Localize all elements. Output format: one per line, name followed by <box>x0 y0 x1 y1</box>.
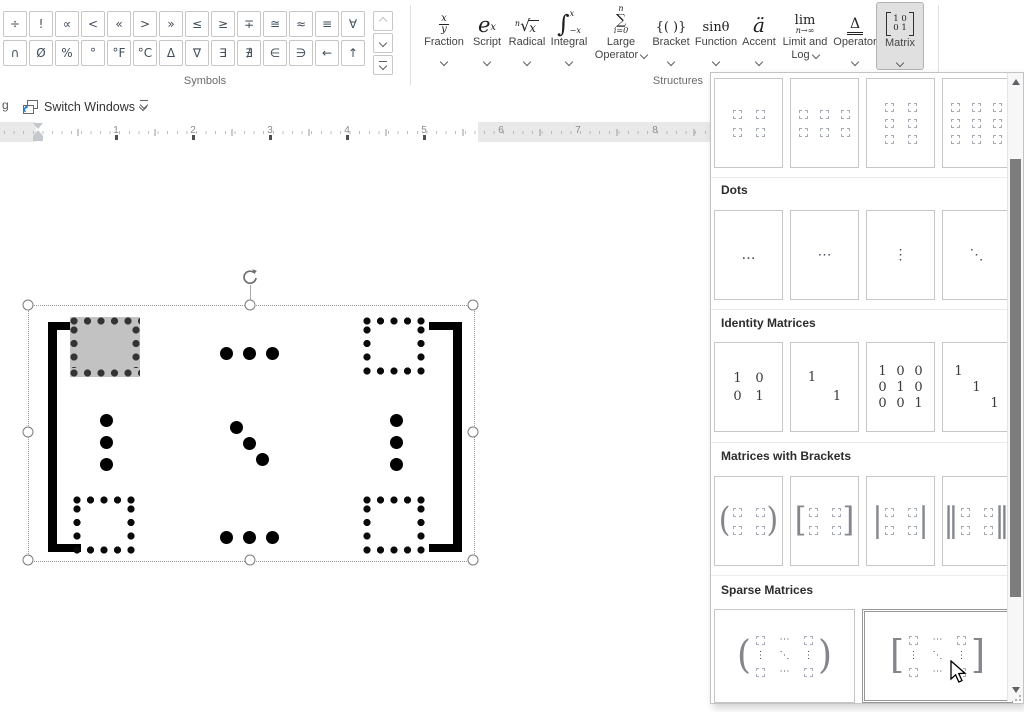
structure-script-button[interactable]: ex Script <box>466 2 508 70</box>
accent-icon: ä <box>738 2 780 36</box>
resize-handle-top-middle[interactable] <box>245 300 256 311</box>
symbol-button[interactable]: ∋ <box>289 40 313 66</box>
integral-icon: ∫x−x <box>546 2 592 36</box>
operator-icon: Δ <box>828 2 882 36</box>
rotate-handle[interactable] <box>241 268 260 287</box>
fraction-icon: xy <box>418 2 470 36</box>
structure-large-operator-button[interactable]: n∑i=0 Large Operator <box>590 2 652 70</box>
ddots-icon <box>256 453 269 466</box>
limit-log-icon: limn→∞ <box>777 2 833 36</box>
symbol-button[interactable]: < <box>81 11 105 37</box>
scroll-down-arrow-icon[interactable] <box>1012 687 1020 693</box>
left-indent-marker[interactable] <box>33 136 43 141</box>
structure-bracket-button[interactable]: {( )} Bracket <box>649 2 693 70</box>
bracket-parens-card[interactable]: () <box>714 476 783 566</box>
switch-windows-label: Switch Windows <box>44 100 135 114</box>
partial-label: g <box>2 98 9 112</box>
ruler-half-tick-marks <box>0 129 710 136</box>
sparse-brackets-card[interactable]: [ ⋯ ⋮⋱⋮ ⋯ ] <box>862 609 1013 703</box>
chevron-down-icon <box>640 51 648 59</box>
group-separator <box>410 5 411 85</box>
symbol-button[interactable]: % <box>55 40 79 66</box>
tab-stop-mark <box>423 135 426 140</box>
ddots-icon <box>243 437 256 450</box>
chevron-down-icon <box>755 58 763 66</box>
vdots-icon <box>390 414 403 427</box>
symbol-button[interactable]: ∇ <box>185 40 209 66</box>
identity-3x3-card[interactable]: 100 010 001 <box>866 342 935 432</box>
ruler-number: 8 <box>650 125 660 136</box>
symbol-button[interactable]: ≅ <box>263 11 287 37</box>
rotate-icon <box>241 268 260 287</box>
matrix-2x3-card[interactable] <box>790 78 859 168</box>
matrix-icon: 1 00 1 <box>877 3 923 37</box>
matrix-3x3-card[interactable] <box>942 78 1011 168</box>
dots-vertical-card[interactable]: ⋮ <box>866 210 935 300</box>
hdots-icon <box>220 531 233 544</box>
sparse-parens-card[interactable]: ( ⋯ ⋮⋱⋮ ⋯ ) <box>714 609 855 703</box>
resize-handle-top-right[interactable] <box>468 300 479 311</box>
hdots-icon <box>266 347 279 360</box>
symbol-button[interactable]: » <box>159 11 183 37</box>
matrix-2x2-card[interactable] <box>714 78 783 168</box>
resize-handle-bottom-middle[interactable] <box>245 555 256 566</box>
resize-handle-bottom-right[interactable] <box>468 555 479 566</box>
chevron-down-icon <box>379 62 387 70</box>
identity-2x2-diagonal-card[interactable]: 1 1 <box>790 342 859 432</box>
chevron-down-icon <box>379 39 387 47</box>
symbol-button[interactable]: °F <box>107 40 131 66</box>
symbols-gallery: ÷ ! ∝ < « > » ≤ ≥ ∓ ≅ ≈ ≡ ∀ ∩ Ø % ° °F °… <box>3 11 365 66</box>
hdots-icon <box>243 531 256 544</box>
section-separator <box>711 442 1007 443</box>
symbol-button[interactable]: ← <box>315 40 339 66</box>
large-operator-icon: n∑i=0 <box>590 2 652 36</box>
symbol-button[interactable]: > <box>133 11 157 37</box>
chevron-down-icon <box>440 58 448 66</box>
symbol-button[interactable]: ∃ <box>211 40 235 66</box>
section-separator <box>711 575 1007 576</box>
structure-integral-button[interactable]: ∫x−x Integral <box>546 2 592 70</box>
scrollbar-thumb[interactable] <box>1010 159 1021 597</box>
gallery-scroll-up-button[interactable] <box>373 11 393 31</box>
symbol-button[interactable]: ↑ <box>341 40 365 66</box>
symbol-button[interactable]: Ø <box>29 40 53 66</box>
word-equation-window: ÷ ! ∝ < « > » ≤ ≥ ∓ ≅ ≈ ≡ ∀ ∩ Ø % ° °F °… <box>0 0 1024 712</box>
tab-stop-mark <box>269 135 272 140</box>
matrix-placeholder-bottom-right[interactable] <box>363 496 425 554</box>
brackets-row: () [] || ‖‖ <box>714 476 1011 566</box>
symbol-button[interactable]: ÷ <box>3 11 27 37</box>
matrix-placeholder-bottom-left[interactable] <box>73 496 135 554</box>
brackets-section-header: Matrices with Brackets <box>721 449 851 463</box>
symbol-button[interactable]: ∄ <box>237 40 261 66</box>
symbol-button[interactable]: ∈ <box>263 40 287 66</box>
vdots-icon <box>100 458 113 471</box>
structure-fraction-button[interactable]: xy Fraction <box>418 2 470 70</box>
ruler-number: 6 <box>496 125 506 136</box>
panel-resize-grip[interactable] <box>1014 694 1022 702</box>
vdots-icon <box>390 436 403 449</box>
bracket-square-card[interactable]: [] <box>790 476 859 566</box>
collapse-gallery-button[interactable] <box>140 100 148 108</box>
resize-handle-bottom-left[interactable] <box>23 555 34 566</box>
symbol-button[interactable]: ≥ <box>211 11 235 37</box>
symbol-button[interactable]: « <box>107 11 131 37</box>
chevron-down-icon <box>523 58 531 66</box>
structure-accent-button[interactable]: ä Accent <box>738 2 780 70</box>
section-separator <box>711 309 1007 310</box>
horizontal-ruler: 1 2 3 4 5 6 7 8 <box>0 122 710 142</box>
structure-operator-button[interactable]: Δ Operator <box>828 2 882 70</box>
ddots-icon <box>230 421 243 434</box>
gallery-scroll-down-button[interactable] <box>373 33 393 53</box>
structure-radical-button[interactable]: n√x Radical <box>504 2 550 70</box>
matrix-placeholder-top-right[interactable] <box>363 317 425 375</box>
ruler-number: 7 <box>573 125 583 136</box>
section-separator <box>711 177 1007 178</box>
scroll-up-arrow-icon[interactable] <box>1012 79 1020 85</box>
resize-handle-middle-right[interactable] <box>468 427 479 438</box>
switch-windows-button[interactable]: Switch Windows <box>18 95 150 119</box>
matrix-right-bracket <box>429 322 462 552</box>
dots-section-header: Dots <box>721 183 748 197</box>
symbol-button[interactable]: Δ <box>159 40 183 66</box>
hdots-icon <box>243 347 256 360</box>
structure-matrix-button[interactable]: 1 00 1 Matrix <box>876 2 924 70</box>
tab-stop-mark <box>346 135 349 140</box>
gallery-more-button[interactable] <box>373 55 393 75</box>
function-icon: sinθ <box>690 2 742 36</box>
symbol-button[interactable]: ≈ <box>289 11 313 37</box>
gallery-scroll-controls <box>373 11 393 75</box>
tab-stop-mark <box>192 135 195 140</box>
document-canvas[interactable] <box>0 142 710 712</box>
chevron-down-icon <box>712 58 720 66</box>
tab-stop-mark <box>115 135 118 140</box>
resize-handle-top-left[interactable] <box>23 300 34 311</box>
panel-scrollbar <box>1007 73 1023 701</box>
vdots-icon <box>390 458 403 471</box>
mouse-cursor <box>950 660 972 689</box>
matrix-dropdown-panel: Dots … ⋯ ⋮ ⋱ Identity Matrices 10 01 1 1 <box>710 72 1024 704</box>
hdots-icon <box>220 347 233 360</box>
symbol-button[interactable]: ≤ <box>185 11 209 37</box>
chevron-down-icon <box>667 58 675 66</box>
dots-baseline-card[interactable]: … <box>714 210 783 300</box>
identity-section-header: Identity Matrices <box>721 316 816 330</box>
identity-2x2-card[interactable]: 10 01 <box>714 342 783 432</box>
matrix-placeholder-top-left-selected[interactable] <box>70 317 140 377</box>
script-icon: ex <box>466 2 508 36</box>
symbols-group-label: Symbols <box>0 75 410 87</box>
matrix-3x2-card[interactable] <box>866 78 935 168</box>
symbol-button[interactable]: ∀ <box>341 11 365 37</box>
sparse-section-header: Sparse Matrices <box>721 583 813 597</box>
chevron-down-icon <box>851 58 859 66</box>
dots-diagonal-card[interactable]: ⋱ <box>942 210 1011 300</box>
dots-row: … ⋯ ⋮ ⋱ <box>714 210 1011 300</box>
switch-windows-icon <box>22 99 39 115</box>
structure-limit-log-button[interactable]: limn→∞ Limit and Log <box>777 2 833 70</box>
symbol-button[interactable]: ° <box>81 40 105 66</box>
dots-midline-card[interactable]: ⋯ <box>790 210 859 300</box>
chevron-down-icon <box>896 59 904 67</box>
first-line-indent-marker[interactable] <box>33 123 43 129</box>
chevron-down-icon <box>565 58 573 66</box>
symbol-button[interactable]: ∩ <box>3 40 27 66</box>
chevron-down-icon <box>483 58 491 66</box>
structure-function-button[interactable]: sinθ Function <box>690 2 742 70</box>
identity-row: 10 01 1 1 100 010 001 1 <box>714 342 1011 432</box>
radical-icon: n√x <box>504 2 550 36</box>
empty-matrices-row <box>714 78 1011 168</box>
vdots-icon <box>100 436 113 449</box>
vdots-icon <box>100 414 113 427</box>
bracket-icon: {( )} <box>649 2 693 36</box>
symbol-button[interactable]: ∝ <box>55 11 79 37</box>
bracket-double-bars-card[interactable]: ‖‖ <box>942 476 1011 566</box>
resize-handle-middle-left[interactable] <box>23 427 34 438</box>
hdots-icon <box>266 531 279 544</box>
symbol-button[interactable]: ! <box>29 11 53 37</box>
chevron-down-icon <box>811 51 819 59</box>
chevron-up-icon <box>379 17 387 25</box>
symbol-button[interactable]: ≡ <box>315 11 339 37</box>
symbol-button[interactable]: ∓ <box>237 11 261 37</box>
identity-3x3-diagonal-card[interactable]: 1 1 1 <box>942 342 1011 432</box>
chevron-down-icon <box>140 101 148 109</box>
bracket-bars-card[interactable]: || <box>866 476 935 566</box>
symbol-button[interactable]: °C <box>133 40 157 66</box>
